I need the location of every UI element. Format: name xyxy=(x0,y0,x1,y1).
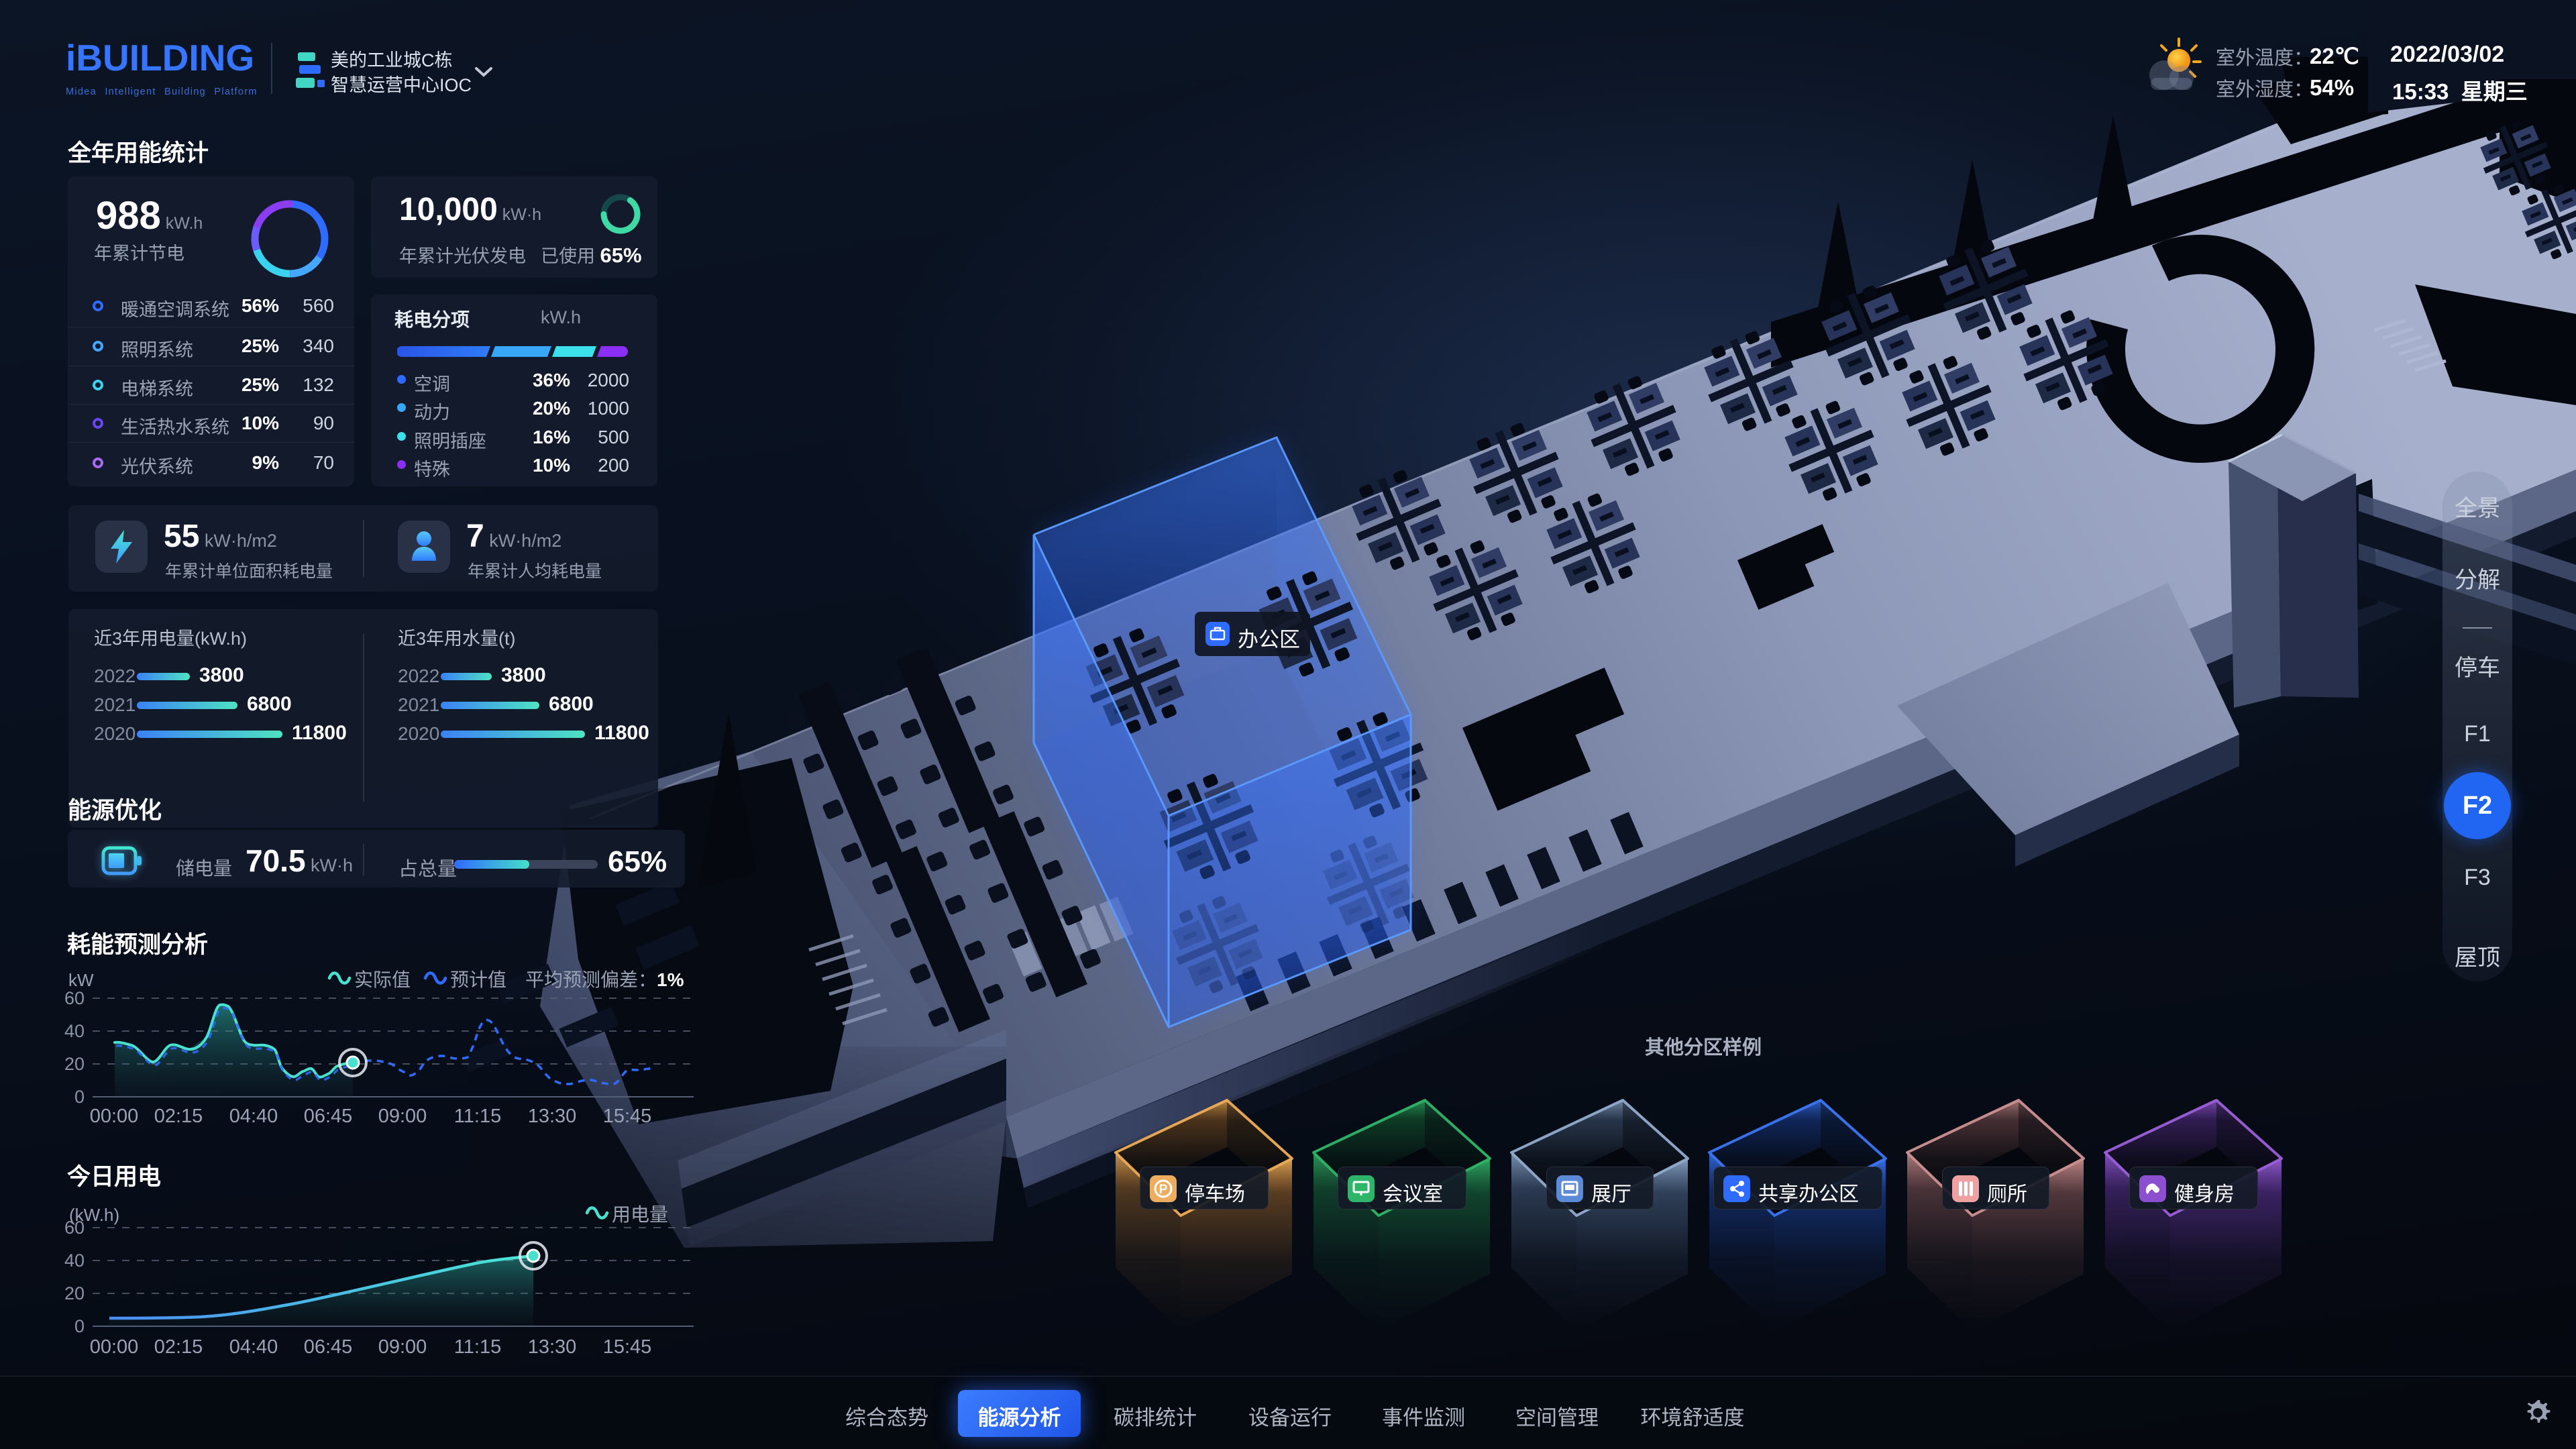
svg-text:40: 40 xyxy=(64,1021,85,1041)
svg-text:P: P xyxy=(1159,1183,1168,1197)
svg-text:02:15: 02:15 xyxy=(154,1106,203,1127)
svg-text:13:30: 13:30 xyxy=(528,1106,577,1127)
svg-text:20: 20 xyxy=(64,1054,85,1074)
svg-text:00:00: 00:00 xyxy=(90,1336,139,1358)
svg-text:实际值: 实际值 xyxy=(354,969,411,990)
svg-text:20: 20 xyxy=(64,1283,85,1303)
svg-text:kW: kW xyxy=(68,970,94,990)
svg-text:06:45: 06:45 xyxy=(304,1336,353,1358)
svg-text:04:40: 04:40 xyxy=(229,1106,278,1127)
svg-text:13:30: 13:30 xyxy=(528,1336,577,1358)
svg-text:15:45: 15:45 xyxy=(603,1106,652,1127)
svg-text:60: 60 xyxy=(64,1218,85,1238)
svg-text:09:00: 09:00 xyxy=(378,1106,427,1127)
svg-text:09:00: 09:00 xyxy=(378,1336,427,1358)
svg-text:02:15: 02:15 xyxy=(154,1336,203,1358)
svg-text:40: 40 xyxy=(64,1250,85,1271)
svg-text:60: 60 xyxy=(64,988,85,1008)
svg-text:0: 0 xyxy=(74,1316,85,1336)
svg-text:11:15: 11:15 xyxy=(454,1106,501,1127)
svg-text:平均预测偏差：1%: 平均预测偏差：1% xyxy=(525,969,684,990)
svg-text:0: 0 xyxy=(74,1087,85,1107)
svg-text:预计值: 预计值 xyxy=(450,969,506,990)
svg-text:11:15: 11:15 xyxy=(454,1336,501,1358)
svg-text:04:40: 04:40 xyxy=(229,1336,278,1358)
svg-text:00:00: 00:00 xyxy=(90,1106,139,1127)
svg-text:15:45: 15:45 xyxy=(603,1336,652,1358)
svg-text:用电量: 用电量 xyxy=(612,1204,668,1225)
svg-text:06:45: 06:45 xyxy=(304,1106,353,1127)
